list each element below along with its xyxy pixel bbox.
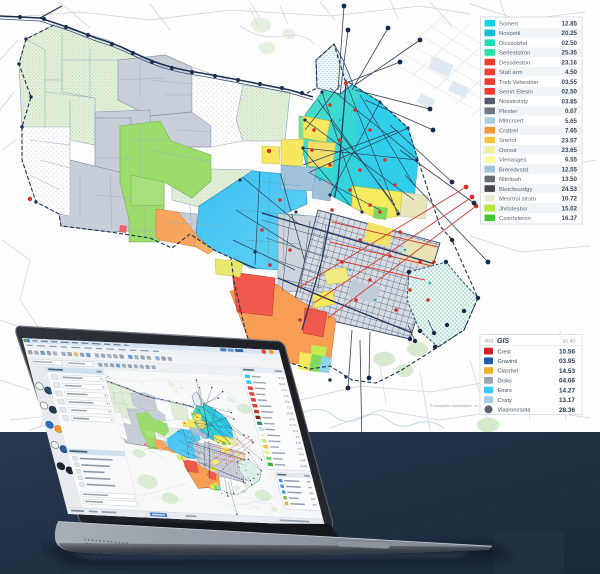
svg-text:Ard: Ard <box>485 339 493 345</box>
svg-text:Drsks: Drsks <box>498 379 512 385</box>
svg-text:ss 40: ss 40 <box>563 339 576 345</box>
svg-text:Stati arm: Stati arm <box>499 70 523 76</box>
svg-text:23.65: 23.65 <box>562 147 578 154</box>
svg-text:Vienasges: Vienasges <box>499 158 526 164</box>
svg-text:24.53: 24.53 <box>562 186 578 193</box>
svg-text:0.07: 0.07 <box>565 108 578 115</box>
svg-text:Treb Vebestion: Treb Vebestion <box>499 80 538 86</box>
svg-text:Ensrs: Ensrs <box>498 388 513 394</box>
svg-text:23.57: 23.57 <box>562 137 578 144</box>
svg-text:04.06: 04.06 <box>559 378 575 385</box>
svg-text:Jhrtstesbsr: Jhrtstesbsr <box>499 206 528 212</box>
svg-text:Breredvstsl: Breredvstsl <box>499 167 528 173</box>
svg-text:5.65: 5.65 <box>565 118 578 125</box>
svg-text:4.50: 4.50 <box>565 69 578 76</box>
svg-text:Mesrtrsl strstn: Mesrtrsl strstn <box>499 197 536 203</box>
svg-text:02.50: 02.50 <box>562 40 578 47</box>
svg-text:Nospetil: Nospetil <box>499 31 520 37</box>
svg-text:Cssrrlsteron: Cssrrlsteron <box>499 216 531 222</box>
svg-text:Dessdeston: Dessdeston <box>499 60 530 66</box>
svg-text:Gravtrnl: Gravtrnl <box>498 359 518 365</box>
svg-text:Cristy: Cristy <box>498 398 512 404</box>
svg-text:Crest: Crest <box>498 349 512 355</box>
svg-text:13.17: 13.17 <box>559 397 575 404</box>
svg-text:Bletcfessdgy: Bletcfessdgy <box>499 187 532 193</box>
svg-text:12.85: 12.85 <box>562 21 578 28</box>
svg-text:16.37: 16.37 <box>562 215 578 222</box>
svg-text:Srerlot: Srerlot <box>499 138 517 144</box>
svg-text:03.85: 03.85 <box>562 98 578 105</box>
svg-text:© mapdata contributors, v1 en: © mapdata contributors, v1 en <box>430 403 484 408</box>
svg-text:6.55: 6.55 <box>565 157 578 164</box>
svg-text:Vlasrorcrsota: Vlasrorcrsota <box>498 408 532 414</box>
svg-text:02.50: 02.50 <box>562 89 578 96</box>
svg-text:Dicssolztel: Dicssolztel <box>499 41 527 47</box>
svg-text:14.27: 14.27 <box>559 387 575 394</box>
svg-text:10.56: 10.56 <box>559 349 575 356</box>
svg-text:Mitrcrsert: Mitrcrsert <box>499 119 524 125</box>
svg-text:Nosstrststy: Nosstrststy <box>499 99 528 105</box>
svg-text:GIS: GIS <box>497 338 509 345</box>
svg-text:Nltlrlissh: Nltlrlissh <box>499 177 521 183</box>
svg-text:10.72: 10.72 <box>562 196 578 203</box>
svg-text:Somert: Somert <box>499 21 518 27</box>
svg-text:Clasrtvrl: Clasrtvrl <box>498 369 519 375</box>
svg-text:25.35: 25.35 <box>562 50 578 57</box>
svg-text:Crsttrel: Crsttrel <box>499 128 518 134</box>
svg-text:03.95: 03.95 <box>559 358 575 365</box>
svg-text:Oorsut: Oorsut <box>499 148 517 154</box>
svg-text:7.65: 7.65 <box>565 128 578 135</box>
svg-text:13.50: 13.50 <box>562 176 578 183</box>
svg-text:12.55: 12.55 <box>562 167 578 174</box>
svg-text:23.16: 23.16 <box>562 59 578 66</box>
svg-text:28.36: 28.36 <box>559 407 575 414</box>
svg-text:14.53: 14.53 <box>559 368 575 375</box>
svg-text:20.25: 20.25 <box>562 30 578 37</box>
svg-text:15.02: 15.02 <box>562 205 578 212</box>
svg-text:03.55: 03.55 <box>562 79 578 86</box>
svg-text:Serleststron: Serleststron <box>499 51 530 57</box>
svg-text:Plester: Plester <box>499 109 517 115</box>
svg-text:Semrt Etesln: Semrt Etesln <box>499 90 533 96</box>
